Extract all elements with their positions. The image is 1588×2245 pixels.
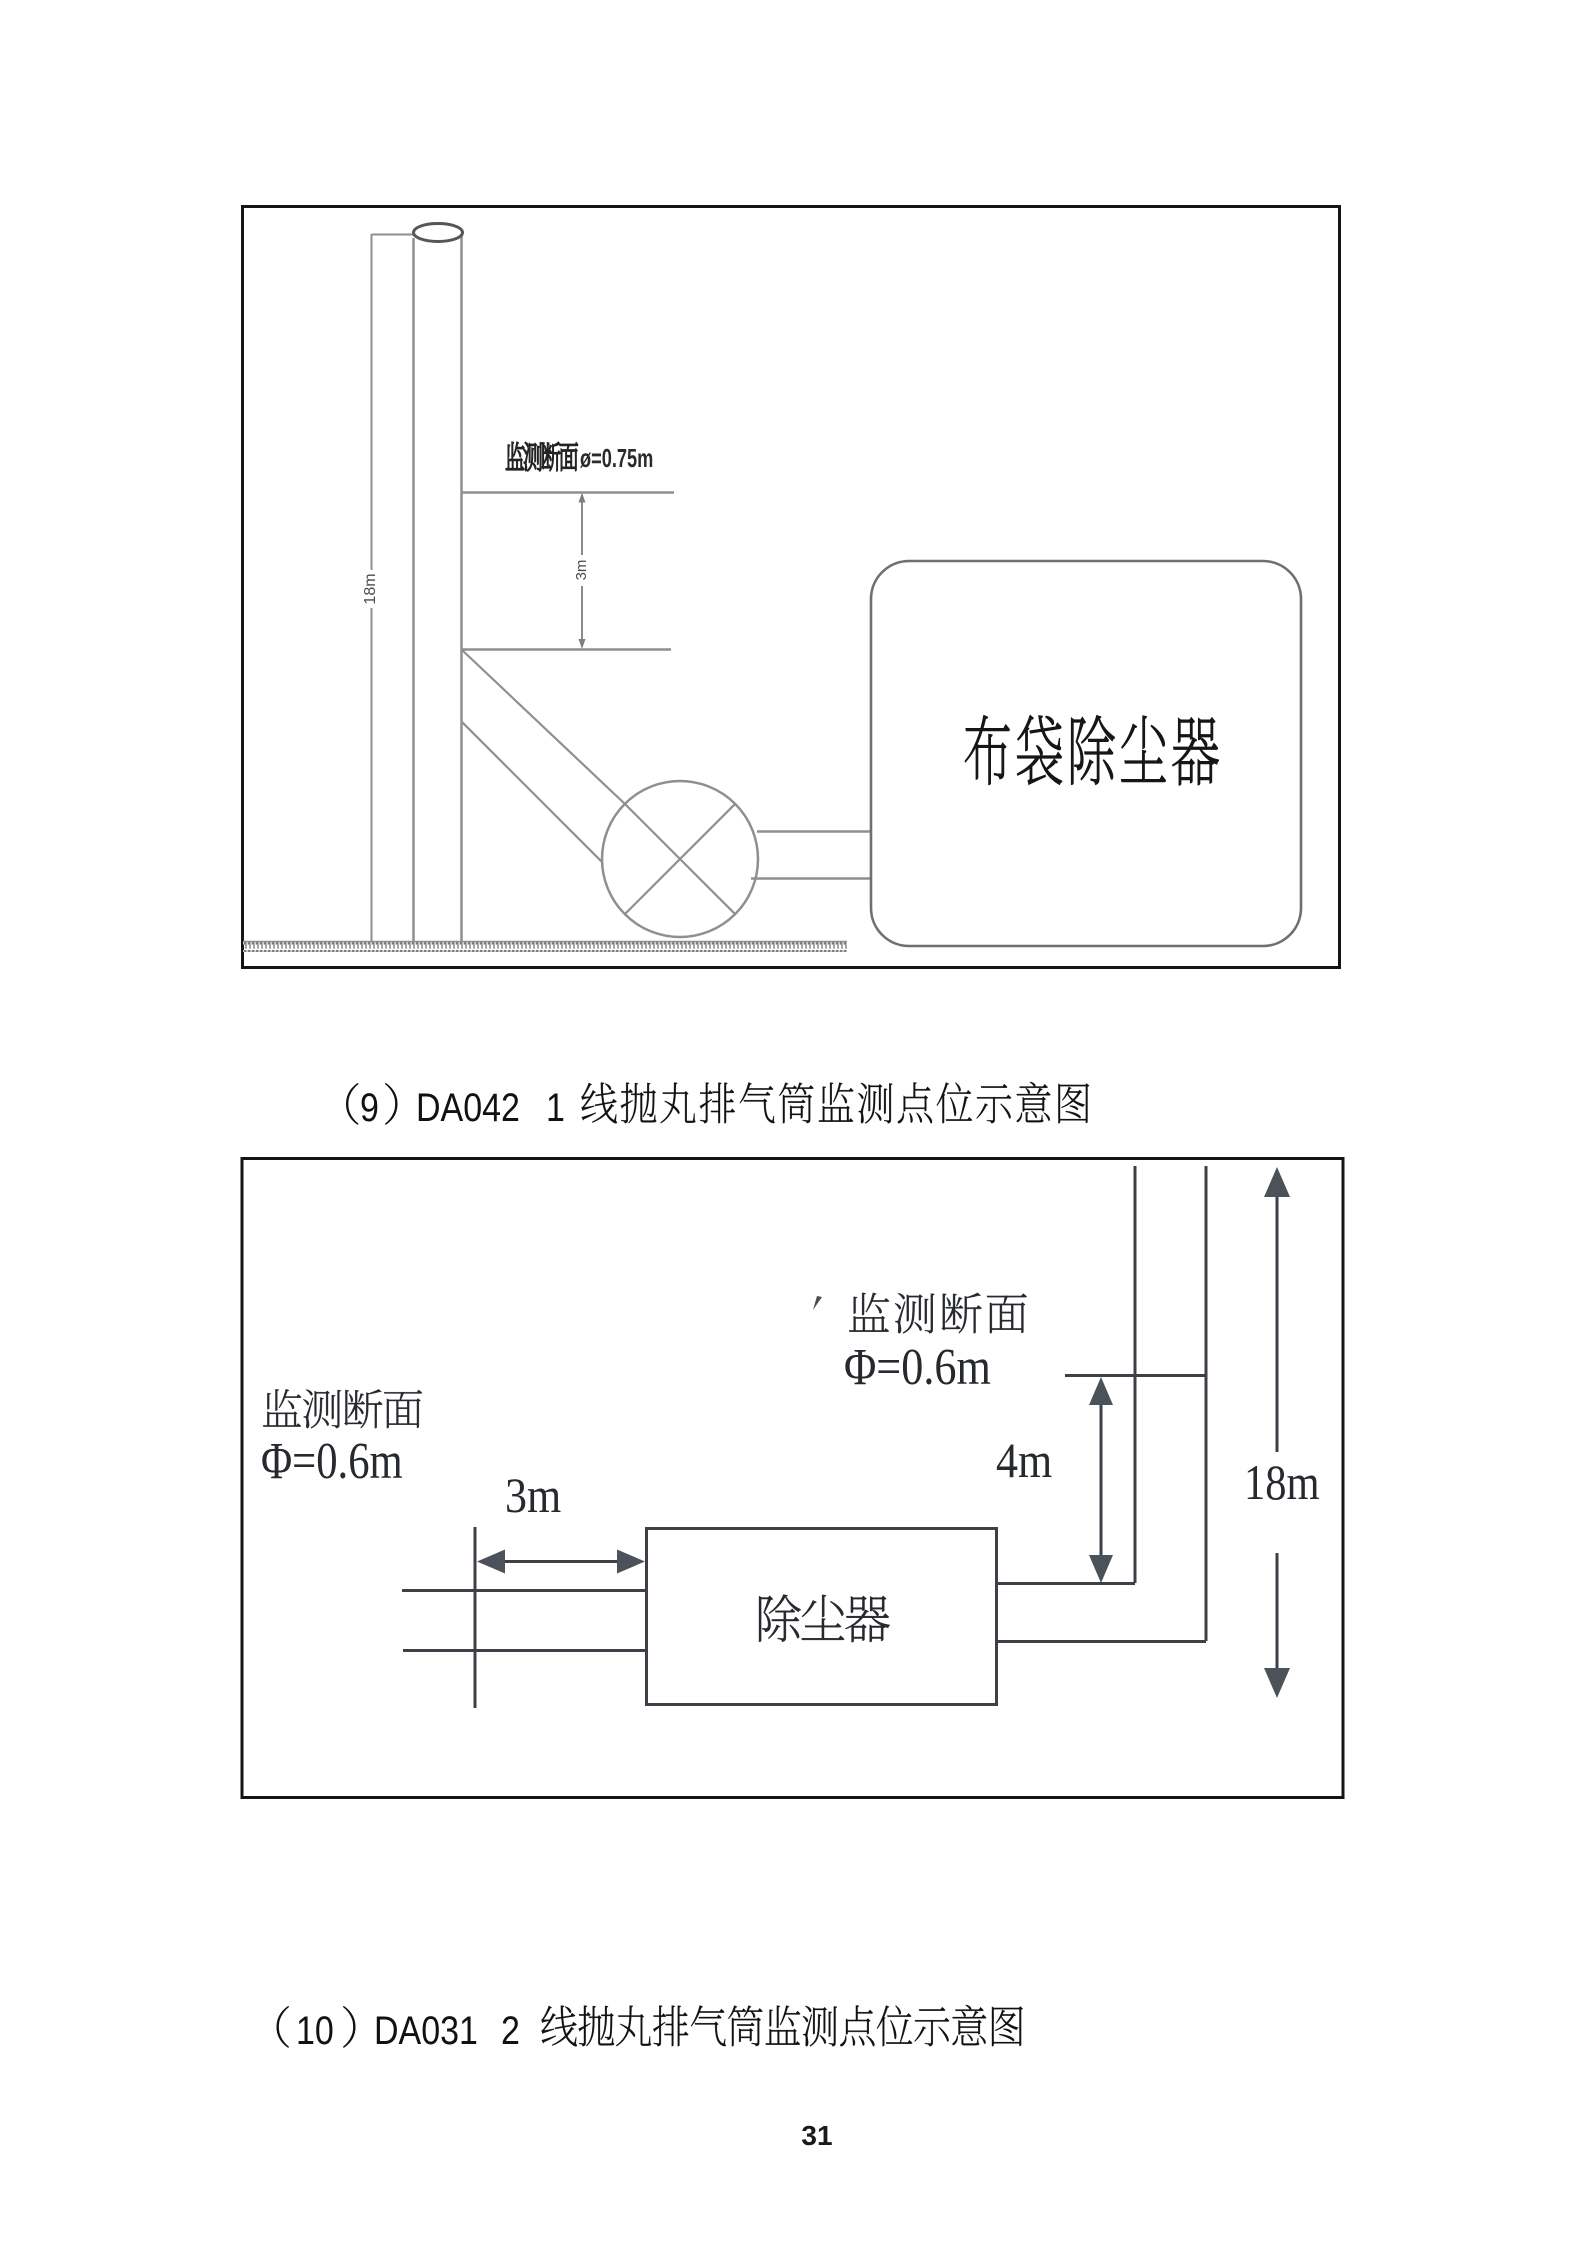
svg-text:Φ=0.6m: Φ=0.6m bbox=[261, 1433, 403, 1490]
svg-text:9: 9 bbox=[360, 1084, 379, 1129]
svg-text:18m: 18m bbox=[1244, 1456, 1320, 1511]
svg-text:4m: 4m bbox=[996, 1433, 1052, 1488]
svg-text:3m: 3m bbox=[573, 560, 590, 581]
svg-text:31: 31 bbox=[801, 2120, 832, 2151]
svg-text:ø=0.75m: ø=0.75m bbox=[580, 444, 653, 473]
svg-text:DA042: DA042 bbox=[416, 1084, 520, 1129]
svg-text:DA031: DA031 bbox=[374, 2007, 478, 2052]
svg-text:18m: 18m bbox=[362, 573, 379, 604]
svg-text:Φ=0.6m: Φ=0.6m bbox=[844, 1339, 991, 1396]
svg-text:1: 1 bbox=[546, 1084, 565, 1129]
svg-text:10: 10 bbox=[296, 2007, 334, 2052]
svg-text:2: 2 bbox=[501, 2007, 520, 2052]
svg-text:3m: 3m bbox=[505, 1468, 561, 1523]
